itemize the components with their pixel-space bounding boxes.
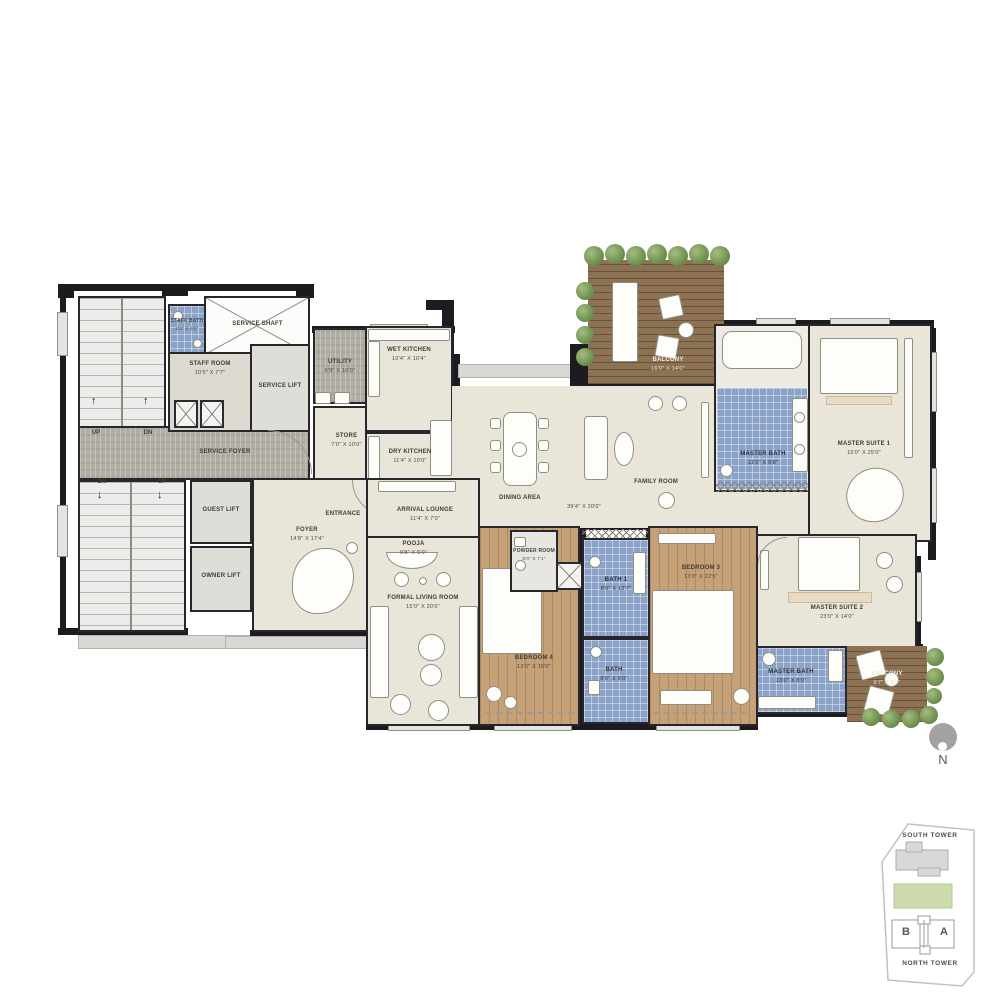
kitchen-counter: [368, 329, 450, 341]
decor: [346, 542, 358, 554]
armchair: [886, 576, 903, 593]
sofa: [584, 416, 608, 480]
coffee-table: [614, 432, 634, 466]
armchair: [504, 696, 517, 709]
bed: [820, 338, 898, 394]
label-bath: BATH8'0" X 9'0": [586, 666, 642, 683]
plant: [647, 244, 667, 264]
wardrobe-strip: [582, 529, 650, 538]
label-pooja: POOJA9'8" X 5'0": [386, 540, 441, 557]
plant: [689, 244, 709, 264]
stairwell-lower: [78, 480, 186, 632]
window: [57, 312, 68, 356]
coffee-table: [420, 664, 442, 686]
armchair: [648, 396, 663, 411]
compass-dot-icon: [938, 742, 947, 751]
toilet: [590, 646, 602, 658]
plant: [710, 246, 730, 266]
plant: [584, 246, 604, 266]
dining-chair: [490, 462, 501, 473]
bathtub: [758, 696, 816, 709]
rug: [788, 592, 872, 603]
label-bedroom-3: BEDROOM 313'0" X 22'5": [670, 564, 732, 581]
dining-chair: [538, 418, 549, 429]
stair-label-up: UP: [86, 430, 106, 436]
plant: [576, 326, 594, 344]
stair-label-dn: DN: [138, 430, 158, 436]
window-ledge: [458, 364, 572, 378]
sofa: [459, 606, 478, 698]
curtain: [486, 712, 574, 714]
label-master-bath-1: MASTER BATH11'0" X 9'8": [732, 450, 794, 467]
armchair: [733, 688, 750, 705]
wardrobe: [904, 338, 913, 458]
toilet: [589, 556, 601, 568]
shaft-box: [200, 400, 224, 428]
plant: [926, 688, 942, 704]
armchair: [390, 694, 411, 715]
label-powder-room: POWDER ROOM5'0" X 7'1": [512, 548, 556, 562]
up-arrow-icon: ↑: [143, 396, 149, 407]
utility-sink: [315, 392, 331, 404]
label-bath-1: BATH 18'0" X 12'7": [588, 576, 644, 593]
basin: [193, 339, 202, 348]
armchair: [658, 492, 675, 509]
label-wet-kitchen: WET KITCHEN10'4" X 10'4": [367, 346, 451, 363]
plant: [605, 244, 625, 264]
shaft-box: [174, 400, 198, 428]
stair-divider: [130, 482, 132, 630]
vanity-counter: [792, 398, 808, 472]
label-master-suite-2: MASTER SUITE 223'0" X 14'0": [804, 604, 870, 621]
plant: [882, 710, 900, 728]
label-service-lift: SERVICE LIFT: [252, 382, 308, 391]
label-store: STORE7'0" X 10'0": [313, 432, 380, 449]
label-utility: UTILITY6'9" X 10'0": [313, 358, 367, 375]
plant: [576, 304, 594, 322]
basin: [794, 412, 805, 423]
armchair: [394, 572, 409, 587]
bathtub: [722, 331, 802, 369]
ledge: [225, 636, 370, 649]
dining-chair: [490, 418, 501, 429]
outdoor-chair: [658, 294, 684, 320]
shaft-box: [556, 562, 583, 590]
label-service-foyer: SERVICE FOYER: [180, 448, 270, 457]
curtain: [654, 712, 746, 714]
label-formal-living: FORMAL LIVING ROOM15'0" X 20'0": [370, 594, 476, 611]
label-foyer: FOYER14'8" X 17'4": [276, 526, 338, 543]
label-dining: DINING AREA: [488, 494, 552, 503]
label-master-suite-1: MASTER SUITE 115'0" X 25'0": [832, 440, 896, 457]
rug: [826, 396, 892, 405]
keyplan-unit-a-label: A: [934, 926, 954, 938]
plant: [926, 648, 944, 666]
vanity-counter: [828, 650, 843, 682]
utility-sink: [334, 392, 350, 404]
label-dining-dims: 39'4" X 20'0": [552, 503, 616, 511]
up-arrow-icon: ↑: [91, 396, 97, 407]
plant: [626, 246, 646, 266]
label-arrival-lounge: ARRIVAL LOUNGE11'4" X 7'0": [380, 506, 470, 523]
plant: [920, 706, 938, 724]
armchair: [428, 700, 449, 721]
label-balcony-top: BALCONY16'0" X 14'0": [638, 356, 698, 373]
outdoor-side-table: [678, 322, 694, 338]
bed: [798, 537, 860, 591]
centerpiece: [512, 442, 527, 457]
label-owner-lift: OWNER LIFT: [190, 572, 252, 581]
outdoor-table: [612, 282, 638, 362]
wall-pillar: [162, 284, 188, 296]
armchair: [436, 572, 451, 587]
label-service-shaft: SERVICE SHAFT: [210, 320, 305, 329]
keyplan-north-tower-label: NORTH TOWER: [880, 960, 980, 967]
tv-console: [701, 402, 709, 478]
armchair: [876, 552, 893, 569]
sofa: [370, 606, 389, 698]
stair-label-up: UP: [152, 479, 172, 485]
plant: [576, 282, 594, 300]
label-dry-kitchen: DRY KITCHEN11'4" X 10'0": [367, 448, 453, 465]
plant: [668, 246, 688, 266]
down-arrow-icon: ↓: [97, 490, 103, 501]
keyplan-south-tower-label: SOUTH TOWER: [880, 832, 980, 839]
keyplan-unit-b-label: B: [896, 926, 916, 938]
stair-divider: [121, 298, 123, 426]
down-arrow-icon: ↓: [157, 490, 163, 501]
plant: [902, 710, 920, 728]
coffee-table: [418, 634, 445, 661]
plant: [862, 708, 880, 726]
armchair: [486, 686, 502, 702]
bench: [660, 690, 712, 705]
wardrobe-strip: [716, 482, 810, 492]
label-balcony-br: BALCONY9'7" X 8'0": [860, 670, 914, 687]
stair-label-dn: DN: [92, 479, 112, 485]
dining-chair: [538, 440, 549, 451]
window: [57, 505, 68, 557]
label-entrance: ENTRANCE: [316, 510, 370, 519]
label-guest-lift: GUEST LIFT: [190, 506, 252, 515]
basin: [794, 444, 805, 455]
label-bedroom-4: BEDROOM 413'0" X 15'0": [502, 654, 566, 671]
armchair: [672, 396, 687, 411]
key-plan: SOUTH TOWER B A NORTH TOWER: [880, 820, 980, 992]
toilet: [762, 652, 776, 666]
dining-chair: [490, 440, 501, 451]
side-table: [419, 577, 427, 585]
north-label: N: [934, 752, 952, 767]
floor-plan-canvas: ↑ ↑ UP DN DN UP ↓ ↓ SERVICE SHAFT STAFF …: [0, 0, 1001, 1001]
label-staff-room: STAFF ROOM10'5" X 7'7": [170, 360, 250, 377]
basin: [514, 537, 526, 547]
label-staff-bath: STAFF BATH4'3" X 6'0": [167, 318, 207, 332]
dining-chair: [538, 462, 549, 473]
console-table: [658, 533, 716, 544]
label-master-bath-2: MASTER BATH13'0" X 8'0": [760, 668, 822, 685]
plant: [926, 668, 944, 686]
plant: [576, 348, 594, 366]
console-table: [378, 481, 456, 492]
label-family-room: FAMILY ROOM: [624, 478, 688, 487]
bed: [652, 590, 734, 674]
